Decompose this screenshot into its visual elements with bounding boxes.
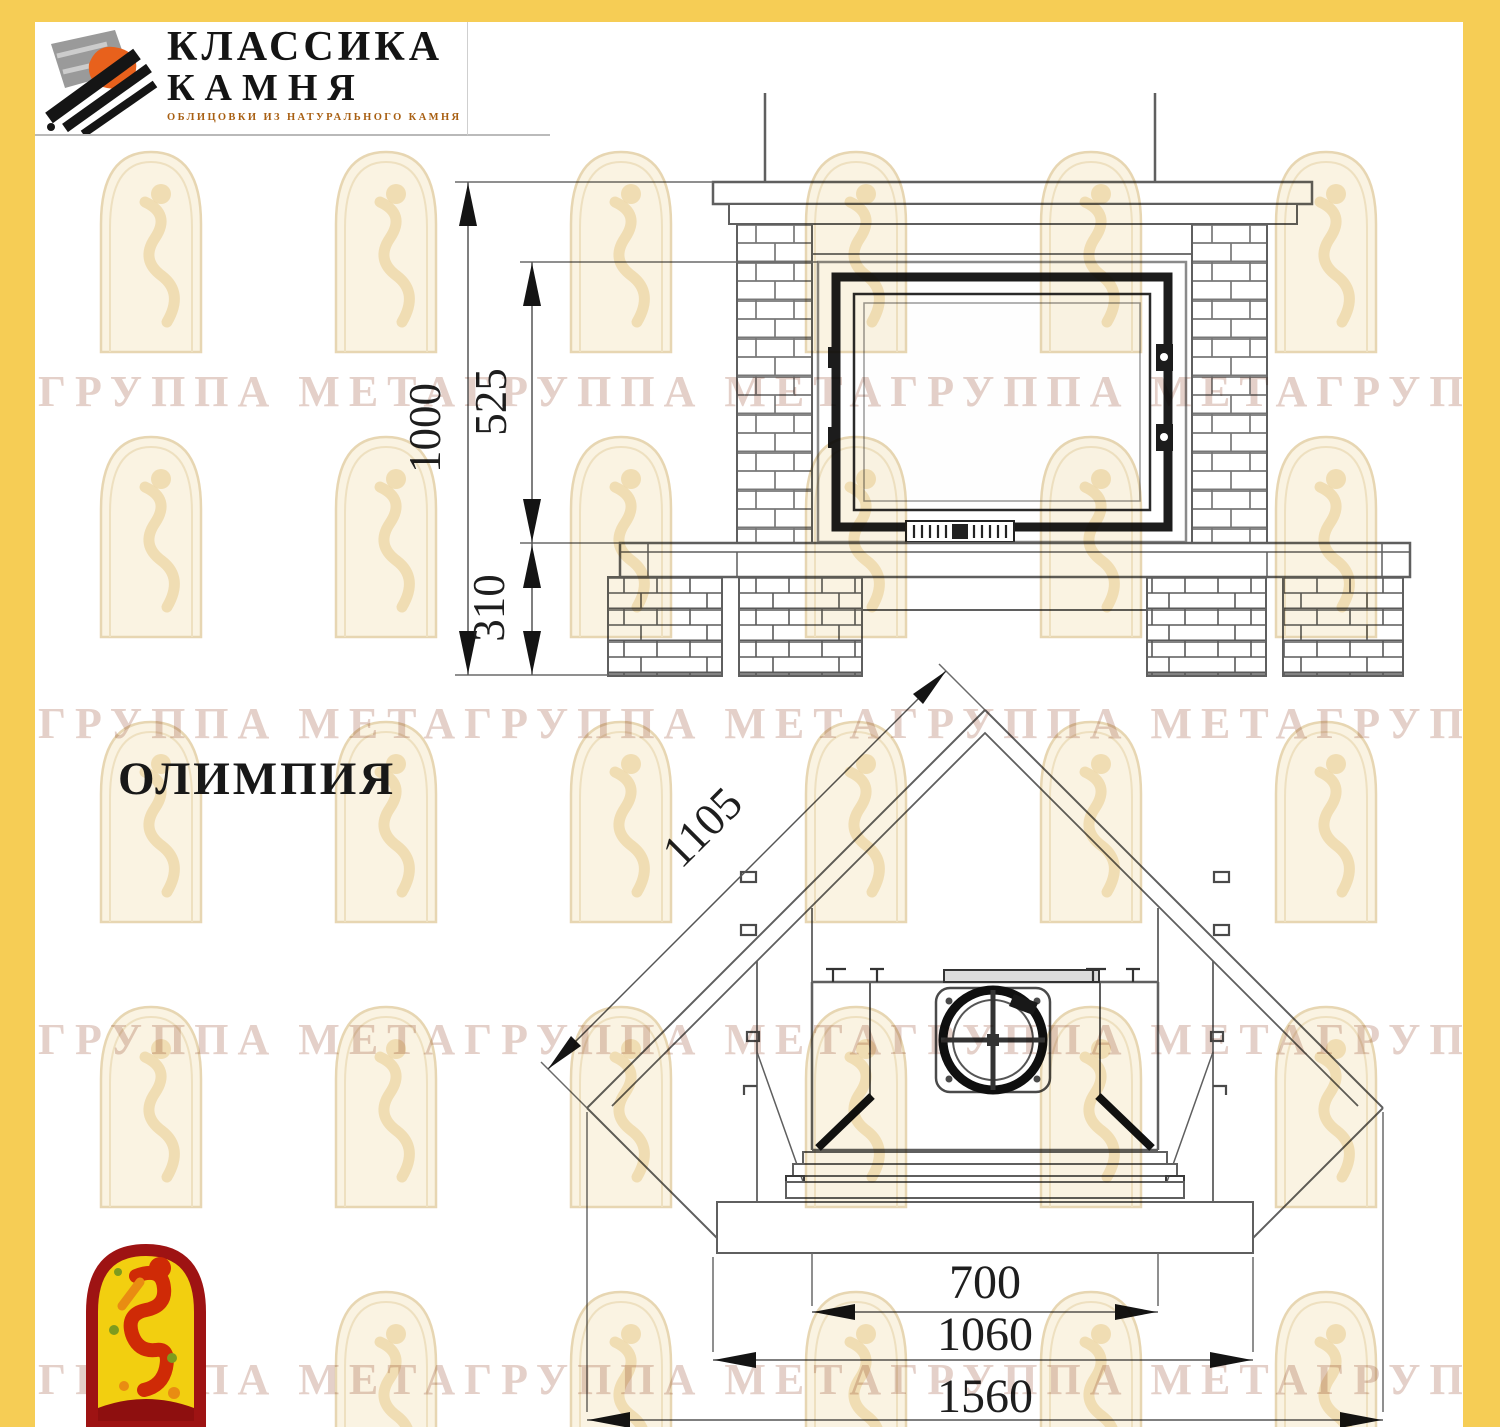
front-rail-1 xyxy=(803,1152,1167,1164)
flue-base-plate xyxy=(944,970,1099,982)
base-brick-piers xyxy=(608,577,1403,676)
model-title: ОЛИМПИЯ xyxy=(118,752,396,806)
firebox-glass xyxy=(864,303,1140,501)
firebox-plan-outline xyxy=(812,982,1158,1150)
hearth-shelf xyxy=(620,543,1410,577)
chimney-wall-lines xyxy=(765,93,1155,182)
page-border-top xyxy=(0,0,1500,22)
vent-grille xyxy=(906,521,1014,542)
page-border-right xyxy=(1463,0,1500,1427)
anchor-tabs-sides xyxy=(741,872,1229,1095)
fireplace-technical-drawing: 1000 525 310 xyxy=(0,0,1500,1427)
dim-label-total-width: 1560 xyxy=(937,1370,1033,1423)
front-step xyxy=(786,1182,1184,1198)
company-logo-box: КЛАССИКА КАМНЯ ОБЛИЦОВКИ ИЗ НАТУРАЛЬНОГО… xyxy=(35,22,468,136)
logo-title-line1: КЛАССИКА xyxy=(167,26,467,68)
meta-arch-logo-icon xyxy=(84,1238,208,1427)
stone-logo-icon xyxy=(43,26,165,134)
mantel-shelf-lower xyxy=(729,204,1297,224)
mantel-shelf-top xyxy=(713,182,1312,204)
firebox-splays xyxy=(818,1096,1152,1148)
logo-title-line2: КАМНЯ xyxy=(167,69,467,107)
front-rail-2 xyxy=(793,1164,1177,1176)
page-border-left xyxy=(0,0,35,1427)
page: 1000 525 310 xyxy=(0,0,1500,1427)
dim-label-side-depth: 1105 xyxy=(652,777,752,877)
left-brick-column xyxy=(737,224,812,543)
right-brick-column xyxy=(1192,224,1267,543)
logo-tagline: ОБЛИЦОВКИ ИЗ НАТУРАЛЬНОГО КАМНЯ xyxy=(167,112,467,123)
dim-label-opening-height: 525 xyxy=(466,368,516,436)
dim-label-body-width: 1060 xyxy=(937,1308,1033,1361)
flue-outlet xyxy=(936,988,1050,1092)
dim-label-opening-width: 700 xyxy=(949,1256,1021,1309)
hearth-band xyxy=(717,1202,1253,1253)
plan-view-dimensions: 1105 700 1060 1560 xyxy=(541,664,1383,1427)
front-view xyxy=(608,93,1410,676)
dim-label-base-height: 310 xyxy=(464,574,514,642)
dim-label-height-total: 1000 xyxy=(400,383,450,473)
